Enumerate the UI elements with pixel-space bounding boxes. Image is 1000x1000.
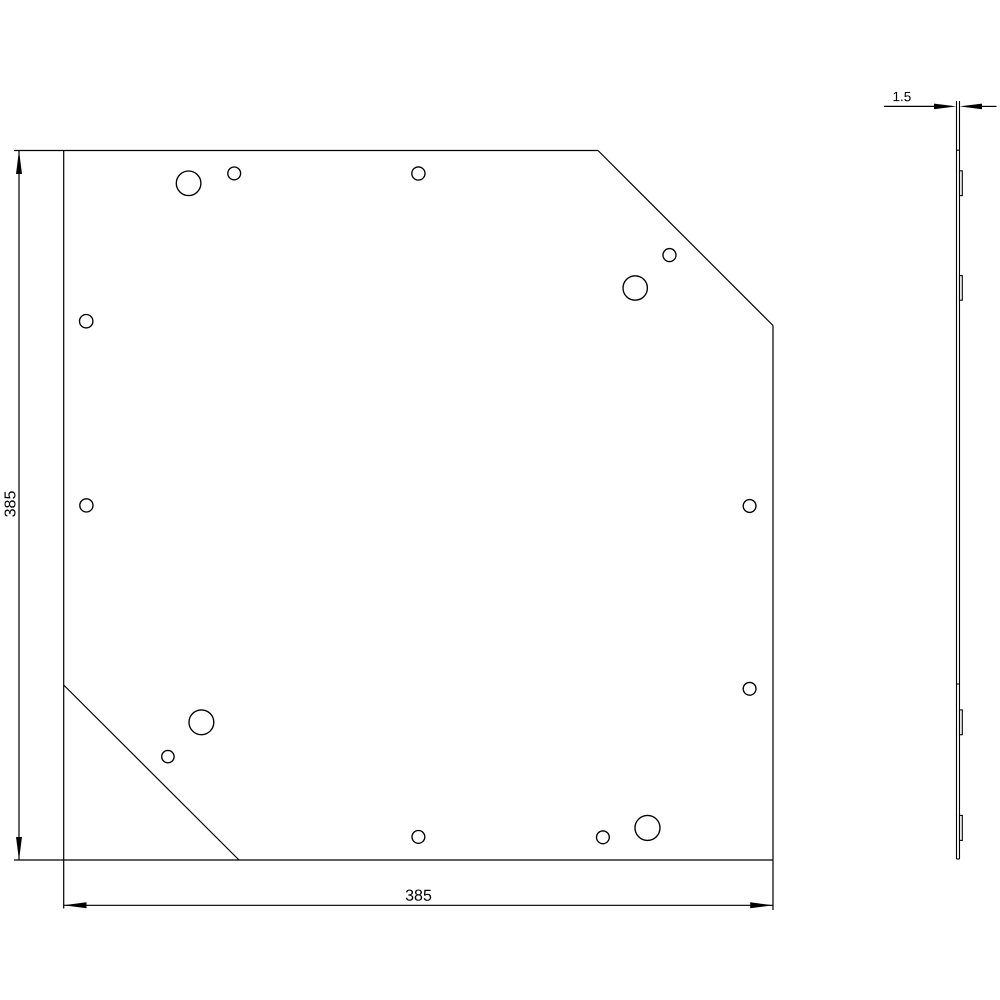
svg-text:385: 385	[405, 888, 432, 905]
svg-text:385: 385	[2, 491, 19, 518]
svg-text:1.5: 1.5	[893, 89, 912, 104]
